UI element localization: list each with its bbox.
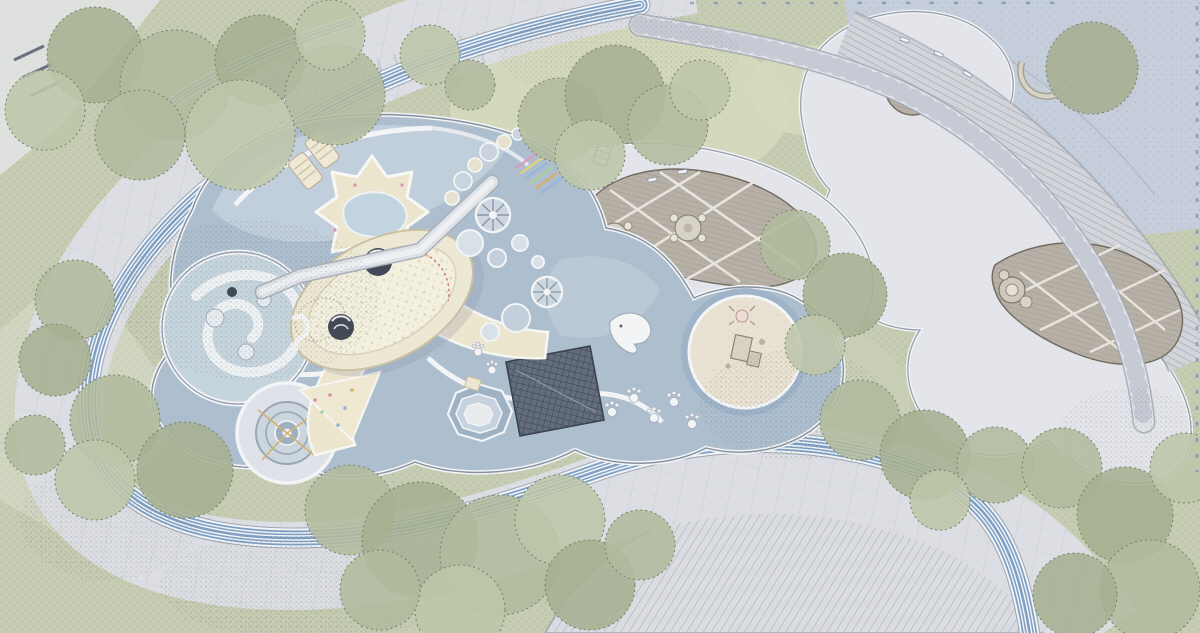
site-plan-stage [0,0,1200,633]
site-plan-canvas [0,0,1200,633]
paper-grain-overlay [0,0,1200,633]
